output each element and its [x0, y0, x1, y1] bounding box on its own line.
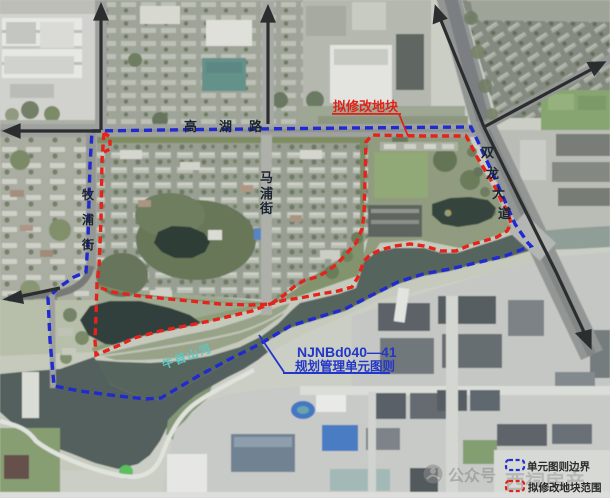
svg-text:浦: 浦	[260, 186, 273, 201]
svg-text:规划管理单元图则: 规划管理单元图则	[295, 359, 395, 374]
svg-text:高: 高	[184, 119, 197, 134]
svg-text:道: 道	[498, 206, 511, 221]
svg-text:浦: 浦	[82, 212, 94, 227]
svg-text:拟修改地块: 拟修改地块	[333, 99, 399, 114]
svg-text:龙: 龙	[486, 166, 499, 181]
svg-text:单元图则边界: 单元图则边界	[527, 460, 590, 473]
svg-text:牧: 牧	[82, 187, 95, 202]
svg-text:大: 大	[492, 186, 505, 201]
svg-text:NJNBd040—41: NJNBd040—41	[297, 344, 397, 360]
svg-text:双: 双	[481, 145, 494, 160]
svg-text:街: 街	[81, 237, 94, 252]
svg-text:街: 街	[259, 201, 273, 216]
svg-text:公众号: 公众号	[448, 466, 496, 485]
svg-text:路: 路	[249, 119, 263, 134]
svg-text:马: 马	[260, 170, 273, 185]
svg-text:湖: 湖	[219, 119, 232, 134]
svg-text:拟修改地块范围: 拟修改地块范围	[528, 481, 602, 494]
